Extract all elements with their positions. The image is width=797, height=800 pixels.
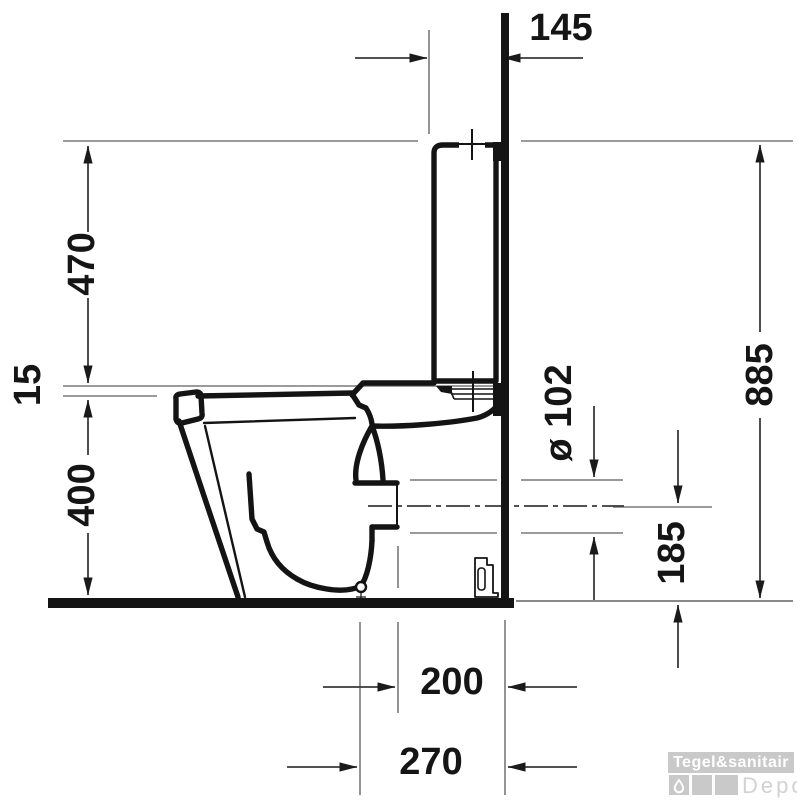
cistern-wall-step — [493, 142, 509, 161]
watermark-square — [692, 775, 712, 795]
watermark-brand: Tegel&sanitair — [668, 752, 794, 773]
bowl-outline — [176, 392, 500, 600]
rim-underside — [204, 418, 355, 423]
vario-outlet — [355, 481, 397, 586]
watermark-label: Depot — [742, 773, 797, 799]
toilet-dimension-drawing: 145 470 15 400 885 ø 102 185 200 270 Teg… — [0, 0, 797, 800]
dim-label-diameter-102: ø 102 — [538, 364, 580, 461]
watermark-square — [715, 775, 738, 795]
cistern-outline — [352, 129, 509, 416]
dim-label-470: 470 — [61, 232, 103, 295]
dim-label-270: 270 — [399, 741, 462, 783]
seat-top — [198, 393, 352, 396]
watermark-square-drop — [669, 775, 689, 795]
dimension-labels: 145 470 15 400 885 ø 102 185 200 270 — [7, 7, 781, 783]
seat-rear-step — [352, 394, 372, 424]
dim-label-145: 145 — [529, 7, 592, 49]
water-drop-icon — [669, 775, 689, 795]
fixing-point — [356, 582, 366, 600]
technical-drawing: 145 470 15 400 885 ø 102 185 200 270 — [0, 0, 797, 800]
wall-drain-fitting — [475, 558, 498, 597]
dim-label-200: 200 — [420, 661, 483, 703]
bowl-front-outer — [179, 421, 238, 597]
wall-section — [501, 13, 509, 607]
dim-label-400: 400 — [61, 463, 103, 526]
dim-label-15: 15 — [7, 364, 49, 406]
dim-label-185: 185 — [651, 521, 693, 584]
dim-label-885: 885 — [739, 343, 781, 406]
bowl-rear-upper — [372, 402, 500, 426]
cistern-shelf — [352, 383, 434, 395]
bowl-rear-inner — [372, 426, 383, 480]
trap-profile — [249, 474, 362, 590]
bowl-rear-outer — [356, 426, 372, 480]
seat-hinge-cover — [450, 371, 497, 412]
flush-button-center-mark — [459, 129, 486, 160]
floor-section — [48, 598, 514, 608]
